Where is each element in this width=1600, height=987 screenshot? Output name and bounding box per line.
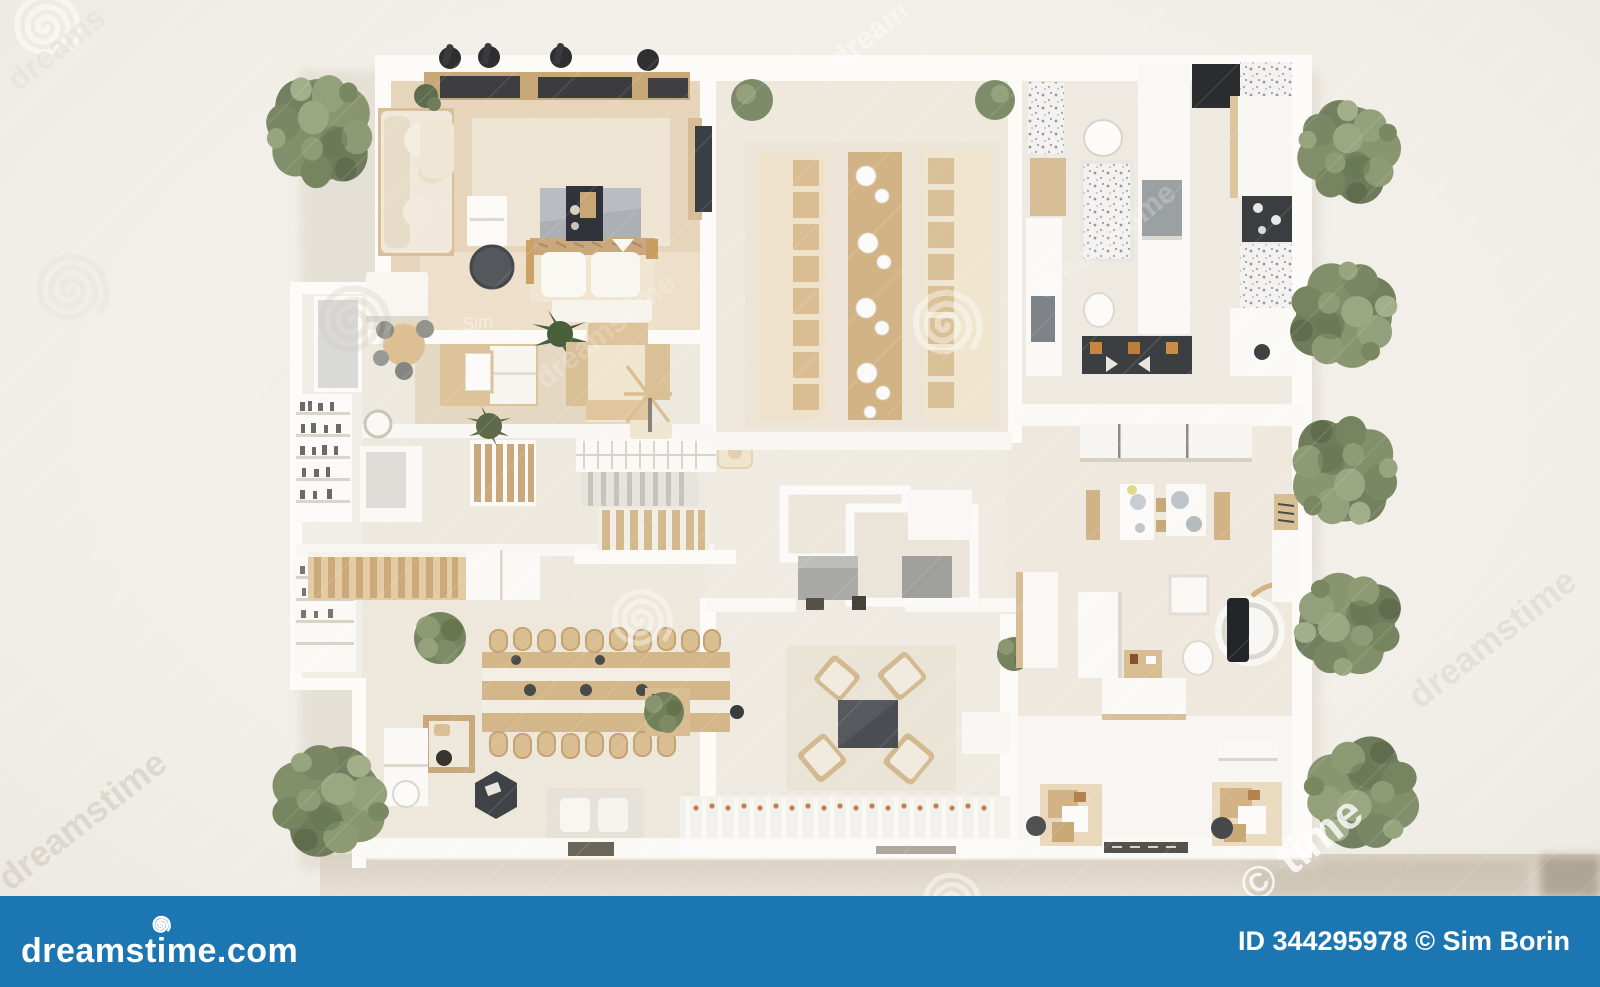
svg-text:ID 344295978 © Sim Borin: ID 344295978 © Sim Borin — [1238, 926, 1570, 956]
svg-text:dreamstime.com: dreamstime.com — [21, 932, 298, 970]
svg-text:Sim: Sim — [461, 311, 494, 335]
